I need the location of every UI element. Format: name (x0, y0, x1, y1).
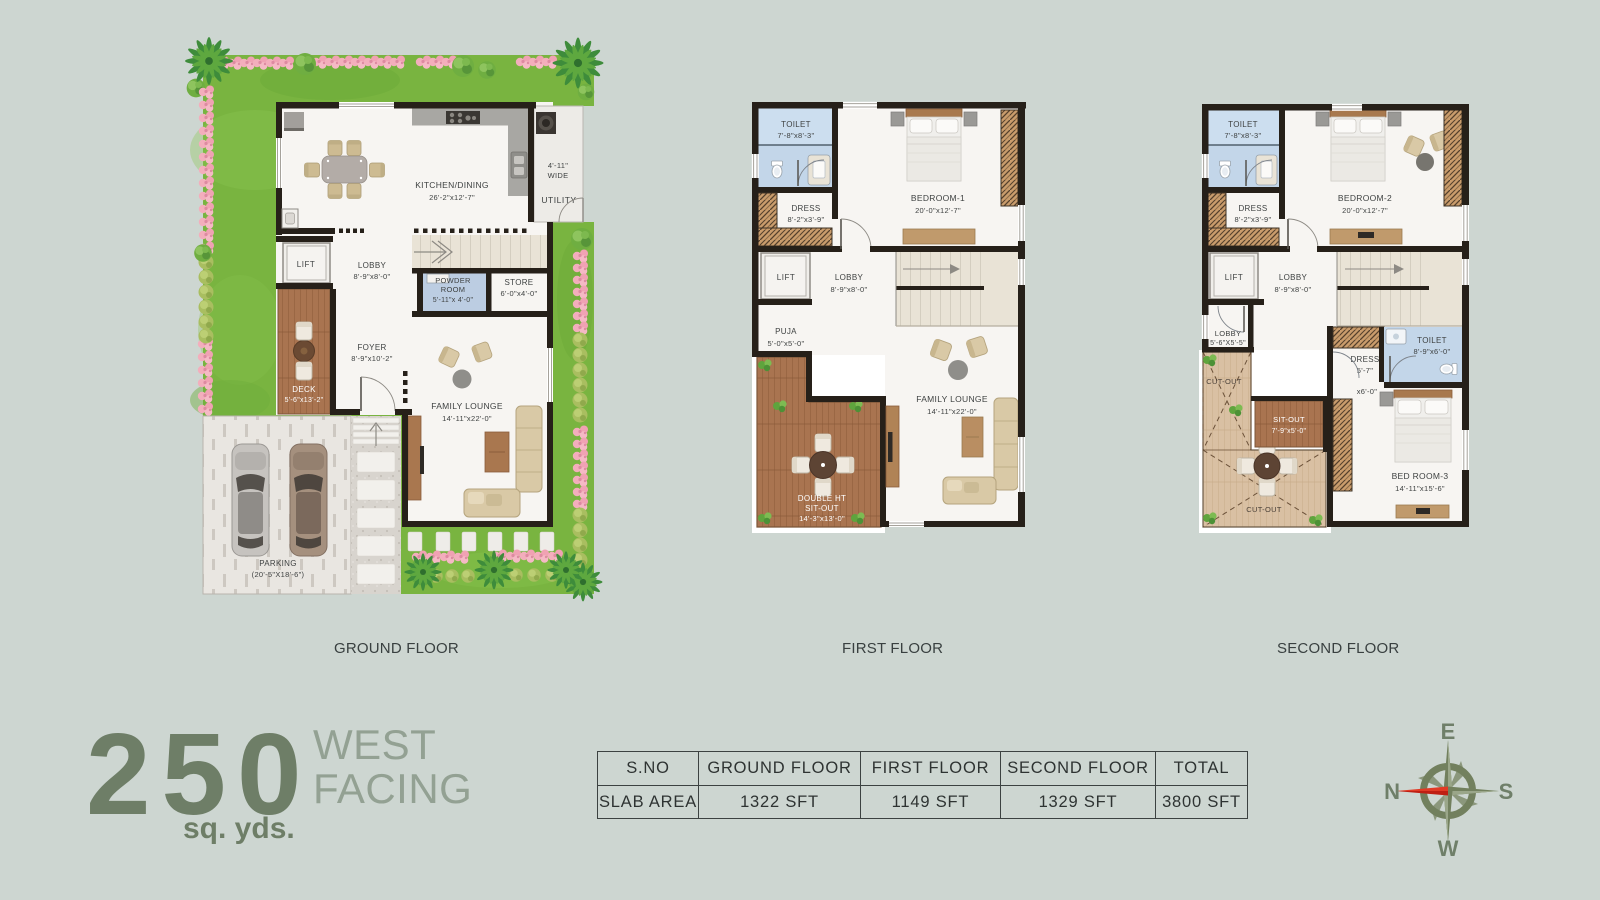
svg-text:PUJA: PUJA (775, 327, 797, 336)
svg-text:DRESS: DRESS (791, 204, 820, 213)
svg-text:FAMILY LOUNGE: FAMILY LOUNGE (431, 401, 503, 411)
svg-text:LIFT: LIFT (297, 260, 315, 269)
svg-text:BEDROOM-2: BEDROOM-2 (1338, 193, 1392, 203)
svg-text:20'-0"x12'-7": 20'-0"x12'-7" (1342, 206, 1388, 215)
svg-text:14'-11"x22'-0": 14'-11"x22'-0" (442, 414, 492, 423)
svg-text:14'-11"x22'-0": 14'-11"x22'-0" (927, 407, 977, 416)
svg-text:ROOM: ROOM (441, 285, 466, 294)
svg-text:5'-6"X5'-5": 5'-6"X5'-5" (1210, 340, 1246, 347)
svg-text:W: W (1438, 836, 1459, 861)
svg-text:5'-0"x5'-0": 5'-0"x5'-0" (768, 339, 805, 348)
svg-text:PARKING: PARKING (259, 559, 297, 568)
svg-text:7'-8"x8'-3": 7'-8"x8'-3" (778, 131, 815, 140)
svg-text:LOBBY: LOBBY (835, 273, 864, 282)
svg-text:x6'-0": x6'-0" (1357, 387, 1378, 396)
svg-text:LOBBY: LOBBY (358, 261, 387, 270)
svg-text:6'-0"x4'-0": 6'-0"x4'-0" (501, 289, 538, 298)
svg-text:4'-11": 4'-11" (548, 161, 568, 170)
svg-text:TOILET: TOILET (1228, 120, 1258, 129)
svg-text:8'-9"x10'-2": 8'-9"x10'-2" (351, 354, 392, 363)
svg-text:7'-9"x5'-0": 7'-9"x5'-0" (1272, 428, 1307, 435)
svg-text:SIT-OUT: SIT-OUT (1273, 415, 1305, 424)
svg-text:BED ROOM-3: BED ROOM-3 (1392, 471, 1449, 481)
svg-text:8'-9"x8'-0": 8'-9"x8'-0" (354, 272, 391, 281)
svg-text:8'-9"x8'-0": 8'-9"x8'-0" (831, 285, 868, 294)
svg-text:8'-9"x6'-0": 8'-9"x6'-0" (1414, 347, 1451, 356)
svg-text:DRESS: DRESS (1350, 355, 1379, 364)
svg-text:STORE: STORE (505, 278, 534, 287)
svg-text:DRESS: DRESS (1238, 204, 1267, 213)
svg-text:CUT-OUT: CUT-OUT (1206, 377, 1242, 386)
svg-text:7'-8"x8'-3": 7'-8"x8'-3" (1225, 131, 1262, 140)
svg-text:FAMILY LOUNGE: FAMILY LOUNGE (916, 394, 988, 404)
svg-text:S: S (1499, 779, 1514, 804)
svg-text:5'-11"x 4'-0": 5'-11"x 4'-0" (433, 297, 474, 304)
svg-text:E: E (1441, 719, 1456, 744)
svg-text:DECK: DECK (292, 385, 316, 394)
svg-text:WIDE: WIDE (548, 171, 569, 180)
svg-text:DOUBLE HT: DOUBLE HT (798, 494, 847, 503)
svg-text:20'-0"x12'-7": 20'-0"x12'-7" (915, 206, 961, 215)
svg-text:LOBBY: LOBBY (1215, 329, 1242, 338)
svg-text:TOILET: TOILET (1417, 336, 1447, 345)
svg-text:POWDER: POWDER (435, 276, 471, 285)
svg-text:14'-3"x13'-0": 14'-3"x13'-0" (799, 514, 845, 523)
svg-text:8'-2"x3'-9": 8'-2"x3'-9" (788, 215, 825, 224)
svg-text:5'-7": 5'-7" (1357, 366, 1373, 375)
svg-text:BEDROOM-1: BEDROOM-1 (911, 193, 965, 203)
svg-text:5'-6"x13'-2": 5'-6"x13'-2" (285, 397, 324, 404)
svg-text:N: N (1384, 779, 1400, 804)
svg-text:(20'-5"X18'-6"): (20'-5"X18'-6") (252, 570, 305, 579)
svg-text:26'-2"x12'-7": 26'-2"x12'-7" (429, 193, 475, 202)
svg-text:8'-2"x3'-9": 8'-2"x3'-9" (1235, 215, 1272, 224)
svg-text:LIFT: LIFT (777, 273, 795, 282)
svg-text:CUT-OUT: CUT-OUT (1246, 505, 1282, 514)
svg-text:TOILET: TOILET (781, 120, 811, 129)
svg-text:KITCHEN/DINING: KITCHEN/DINING (415, 180, 489, 190)
svg-text:LOBBY: LOBBY (1279, 273, 1308, 282)
svg-text:FOYER: FOYER (357, 343, 386, 352)
svg-text:14'-11"x15'-6": 14'-11"x15'-6" (1395, 484, 1445, 493)
svg-text:SIT-OUT: SIT-OUT (805, 504, 839, 513)
svg-text:UTILITY: UTILITY (541, 195, 576, 205)
svg-text:LIFT: LIFT (1225, 273, 1243, 282)
svg-text:8'-9"x8'-0": 8'-9"x8'-0" (1275, 285, 1312, 294)
